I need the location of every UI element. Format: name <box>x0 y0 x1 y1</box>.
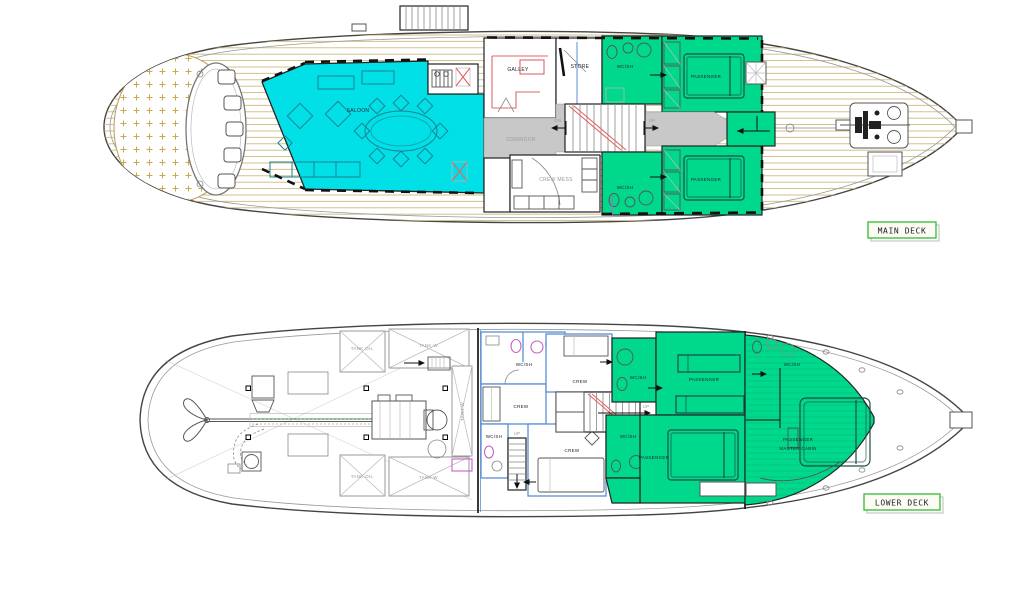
badge-lower-deck: LOWER DECK <box>864 494 943 513</box>
bath-label: WC/SH <box>486 434 503 439</box>
wardrobe-icon <box>746 483 776 496</box>
tank-water-side: TANK W. <box>452 366 472 456</box>
bath-label: WC/SH <box>617 185 634 190</box>
pantry-room <box>428 64 478 94</box>
main-deck-plan: SALOON GALLEY <box>104 6 972 241</box>
passenger-cabin-lower-fwd: PASSENGER <box>648 332 745 415</box>
deck-hatch-icon <box>746 62 766 84</box>
cabin-label: PASSENGER <box>639 455 670 460</box>
svg-text:TANK OIL: TANK OIL <box>351 346 374 351</box>
galley-room: GALLEY <box>484 38 556 118</box>
bath-label: WC/SH <box>516 362 533 367</box>
master-cabin-label-2: MASTER CABIN <box>779 446 816 451</box>
stairs-up-label: UP <box>649 118 656 123</box>
stern-fitting <box>956 120 972 133</box>
stairs-main-deck: DN UP <box>552 104 658 152</box>
crew-label: CREW <box>514 404 529 409</box>
stairs-down-label: DN <box>554 118 561 123</box>
lobby <box>484 158 510 212</box>
svg-text:MAIN DECK: MAIN DECK <box>878 227 927 236</box>
bathroom-fwd-bottom: WC/SH <box>602 152 662 216</box>
aft-hatch-icon <box>868 152 902 176</box>
crew-label: CREW <box>565 448 580 453</box>
tank-oil-top: TANK OIL <box>340 331 385 372</box>
skylight-icon <box>352 6 468 31</box>
bath-label: WC/SH <box>784 362 801 367</box>
tank-oil-bottom: TANK OIL <box>340 455 385 496</box>
galley-label: GALLEY <box>507 67 529 73</box>
passenger-cabin-top: PASSENGER <box>650 36 762 112</box>
svg-text:TANK OIL: TANK OIL <box>351 474 374 479</box>
tank-water-bottom: TANK W. <box>389 457 469 496</box>
crew-cabin-fwd: CREW <box>546 334 612 392</box>
master-cabin-label-1: PASSENGER <box>783 437 814 442</box>
saloon-label: SALOON <box>347 108 370 114</box>
corridor-label: CORRIDOR <box>506 137 536 143</box>
crew-label: CREW <box>573 379 588 384</box>
crew-bathroom-bottom: WC/SH <box>481 424 508 478</box>
crew-cabin-aft: CREW <box>528 424 606 496</box>
tank-water-top: TANK W. <box>389 329 469 368</box>
seating-oval <box>186 63 246 195</box>
crew-mess-room: CREW MESS <box>510 155 600 212</box>
bath-label: WC/SH <box>630 375 647 380</box>
bath-label: WC/SH <box>617 64 634 69</box>
cabin-label: PASSENGER <box>691 74 722 79</box>
cabin-label: PASSENGER <box>691 177 722 182</box>
svg-text:TANK W.: TANK W. <box>460 401 465 421</box>
svg-text:LOWER DECK: LOWER DECK <box>875 499 929 508</box>
stairs-up-label: UP <box>643 404 650 409</box>
boarding-platform <box>727 112 775 146</box>
passenger-cabin-bottom: PASSENGER <box>650 146 762 215</box>
bathroom-fwd-top: WC/SH <box>602 36 662 104</box>
svg-text:TANK W.: TANK W. <box>419 343 439 348</box>
cabin-label: PASSENGER <box>689 377 720 382</box>
svg-text:TANK W.: TANK W. <box>419 475 439 480</box>
badge-main-deck: MAIN DECK <box>868 222 939 241</box>
lower-deck-plan: TANK OIL TANK W. TANK OIL TANK W. TANK W <box>140 323 972 516</box>
stairs-crew: UP <box>508 431 526 490</box>
store-label: STORE <box>571 64 590 70</box>
crew-cabin-port: CREW <box>481 384 546 424</box>
yacht-general-arrangement: SALOON GALLEY <box>0 0 1024 600</box>
crew-mess-label: CREW MESS <box>539 177 573 183</box>
stairs-up-label: UP <box>514 431 521 436</box>
bow-fitting <box>950 412 972 428</box>
bath-label: WC/SH <box>620 434 637 439</box>
